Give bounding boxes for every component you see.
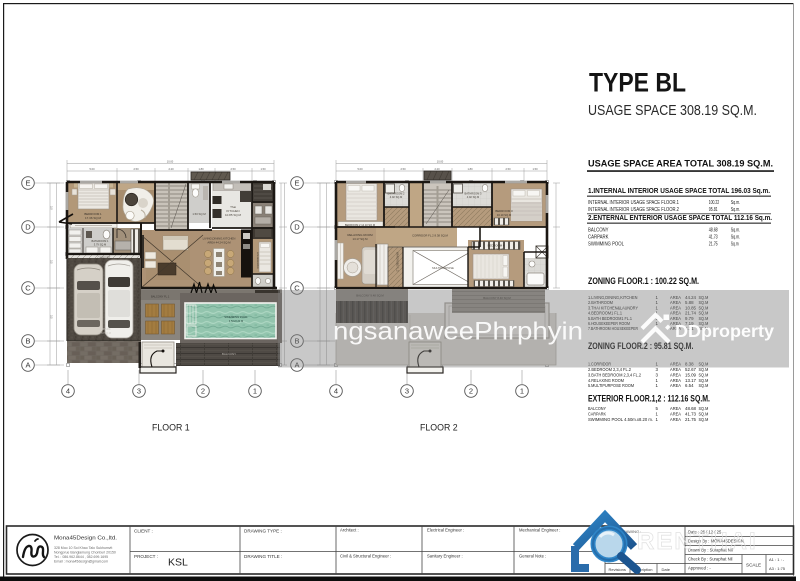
svg-text:AREA: AREA [670,417,681,422]
svg-text:1: 1 [253,387,257,396]
svg-text:SWIMMING POOL: SWIMMING POOL [588,241,624,247]
svg-text:2.ENTERNAL ENTERIOR USAGE SPAC: 2.ENTERNAL ENTERIOR USAGE SPACE TOTAL 11… [588,213,772,222]
svg-text:3.BATH BEDROOM 2,3,4 FL.2: 3.BATH BEDROOM 2,3,4 FL.2 [588,372,641,377]
svg-text:B: B [25,337,30,346]
svg-text:328 Moo 10 Soi Khao Talo Sukhu: 328 Moo 10 Soi Khao Talo Sukhumvit [54,546,112,550]
svg-text:USAGE SPACE AREA TOTAL 308.19: USAGE SPACE AREA TOTAL 308.19 SQ.M. [588,159,773,170]
svg-text:AREA: AREA [670,383,681,388]
svg-text:CARPARK: CARPARK [97,327,110,331]
svg-text:Email : mona45design@gmail.com: Email : mona45design@gmail.com [54,560,108,564]
svg-text:2.50: 2.50 [400,167,406,171]
svg-text:5: 5 [656,406,659,411]
svg-text:1: 1 [656,378,659,383]
svg-text:6.54: 6.54 [685,383,694,388]
svg-text:HOUSEKEEPER: HOUSEKEEPER [256,252,258,269]
svg-text:1.50: 1.50 [532,167,538,171]
svg-text:10.00: 10.00 [437,159,444,163]
svg-text:SQ.M: SQ.M [699,372,709,377]
svg-text:1: 1 [656,411,659,416]
svg-text:3: 3 [656,372,659,377]
svg-text:DRAWING TYPE :: DRAWING TYPE : [244,529,282,534]
svg-text:Mechanical Engineer :: Mechanical Engineer : [519,528,560,533]
svg-text:Architect :: Architect : [340,528,359,533]
svg-text:Approved : -: Approved : - [688,566,711,571]
svg-text:21.75: 21.75 [685,417,697,422]
svg-text:D: D [294,223,300,232]
svg-text:4: 4 [334,387,338,396]
svg-text:48.68: 48.68 [685,406,697,411]
svg-text:11.67 SQ.M: 11.67 SQ.M [489,247,503,251]
svg-text:DRAWING TITLE :: DRAWING TITLE : [244,554,282,559]
svg-text:Sanitary Engineer :: Sanitary Engineer : [427,554,463,559]
svg-text:TYPE BL: TYPE BL [589,68,686,98]
svg-text:SQ.M: SQ.M [699,383,709,388]
svg-text:Check By : Suraphat Nil: Check By : Suraphat Nil [688,557,733,562]
svg-text:1: 1 [520,387,524,396]
svg-text:A: A [25,361,30,370]
svg-text:4.50x8.20 M: 4.50x8.20 M [229,319,243,323]
svg-text:41.73 SQ.M: 41.73 SQ.M [97,331,111,335]
svg-text:SQ.M: SQ.M [699,417,709,422]
svg-text:1.INTERNAL INTERIOR USAGE SPAC: 1.INTERNAL INTERIOR USAGE SPACE TOTAL 19… [588,186,770,195]
svg-text:2: 2 [201,387,205,396]
svg-text:2: 2 [469,387,473,396]
svg-text:BEDROOM 3: BEDROOM 3 [495,209,513,213]
svg-text:1: 1 [656,417,659,422]
svg-text:USAGE SPACE 308.19 SQ.M.: USAGE SPACE 308.19 SQ.M. [588,102,757,119]
svg-text:4: 4 [66,387,70,396]
svg-text:SQ.M: SQ.M [699,378,709,383]
svg-text:5.MULTIPURPOSE ROOM: 5.MULTIPURPOSE ROOM [588,383,634,388]
svg-text:2.20: 2.20 [168,167,174,171]
svg-text:BALCONY: BALCONY [588,406,606,411]
svg-text:E: E [294,179,299,188]
svg-text:2.50: 2.50 [133,167,139,171]
svg-text:BALCONY: BALCONY [222,352,236,356]
svg-text:4.RELAXING ROOM: 4.RELAXING ROOM [588,378,624,383]
svg-text:KSL: KSL [168,557,188,569]
svg-text:BEDROOM 4: BEDROOM 4 [488,244,505,248]
svg-text:WARDROBE FL.2: WARDROBE FL.2 [396,252,399,272]
svg-text:CARPARK: CARPARK [588,234,609,240]
svg-text:4.92 SQ.M: 4.92 SQ.M [390,195,402,199]
svg-text:SQ.M: SQ.M [699,367,709,372]
svg-text:CLIENT :: CLIENT : [134,529,153,534]
svg-text:2.50: 2.50 [230,167,236,171]
svg-text:4.92 SQ.M: 4.92 SQ.M [467,195,479,199]
svg-text:3.5: 3.5 [50,260,54,264]
svg-text:BALCONY: BALCONY [588,227,609,233]
svg-text:3.79 SQ.M: 3.79 SQ.M [94,242,106,246]
svg-text:SCALE: SCALE [746,563,761,568]
svg-text:Sq.m.: Sq.m. [731,200,741,206]
svg-text:3: 3 [656,367,659,372]
svg-text:2.BEDROOM 2,3,4 FL.2: 2.BEDROOM 2,3,4 FL.2 [588,367,632,372]
svg-text:Sq.m.: Sq.m. [731,234,741,240]
svg-text:SQ.M: SQ.M [699,406,709,411]
svg-text:1.50: 1.50 [260,167,266,171]
svg-text:General Note :: General Note : [519,554,546,559]
svg-text:17.36 SQ.M: 17.36 SQ.M [85,216,102,220]
svg-text:1.80: 1.80 [467,167,473,171]
svg-text:SWIMMING POOL 4.50m.x8.20 m.: SWIMMING POOL 4.50m.x8.20 m. [588,417,653,422]
svg-text:1.80: 1.80 [198,167,204,171]
svg-text:AREA: AREA [670,411,681,416]
svg-text:AREA: AREA [670,367,681,372]
svg-text:Tel. : 086.962.8644 , 082.699: Tel. : 086.962.8644 , 082.699.1695 [54,555,108,559]
svg-text:10.00: 10.00 [167,159,174,163]
svg-text:21.75: 21.75 [709,241,718,247]
svg-text:SQ.M: SQ.M [699,411,709,416]
svg-text:AREA 44.24 SQ.M: AREA 44.24 SQ.M [207,241,231,245]
svg-text:FLOOR 2: FLOOR 2 [420,423,458,433]
svg-text:48.68: 48.68 [709,227,718,233]
svg-text:Nongprue Banglamung Chonburi 2: Nongprue Banglamung Chonburi 20150 [54,551,116,555]
svg-text:3: 3 [137,387,141,396]
svg-text:15.09: 15.09 [685,372,697,377]
svg-text:AREA: AREA [670,378,681,383]
svg-text:1: 1 [656,383,659,388]
svg-text:16.10 SQ.M: 16.10 SQ.M [497,213,512,217]
svg-text:13.17: 13.17 [685,378,697,383]
svg-text:3.5: 3.5 [50,315,54,319]
svg-text:41.73: 41.73 [685,411,697,416]
svg-text:2.50: 2.50 [505,167,511,171]
svg-text:CARPARK: CARPARK [588,411,606,416]
svg-text:A1 : 1 : -: A1 : 1 : - [769,557,785,562]
svg-text:CORRIDOR FL.2 8.38 SQ.M: CORRIDOR FL.2 8.38 SQ.M [412,234,448,238]
svg-text:D: D [25,223,31,232]
svg-text:C: C [25,284,31,293]
svg-text:5.00: 5.00 [89,167,95,171]
svg-text:FLOOR 1: FLOOR 1 [152,423,190,433]
svg-text:41.73: 41.73 [709,234,718,240]
svg-text:1.50 SQ.M: 1.50 SQ.M [192,212,206,216]
svg-text:52.67: 52.67 [685,367,697,372]
svg-text:Civil & Structural Engineer :: Civil & Structural Engineer : [340,554,391,559]
svg-text:100.22: 100.22 [709,200,720,206]
svg-text:PROJECT :: PROJECT : [134,554,158,559]
svg-text:13.17 SQ.M: 13.17 SQ.M [353,237,369,241]
svg-text:AREA: AREA [670,372,681,377]
svg-text:A3 : 1:75: A3 : 1:75 [769,566,786,571]
svg-text:Sq.m: Sq.m [731,241,739,247]
svg-text:Mona45Design Co.,ltd.: Mona45Design Co.,ltd. [54,536,117,542]
svg-text:Electrical Engineer :: Electrical Engineer : [427,528,464,533]
svg-text:MULTIPURPOSE: MULTIPURPOSE [432,266,454,270]
svg-text:5.00: 5.00 [357,167,363,171]
svg-text:SWIMMING POOL: SWIMMING POOL [224,315,248,319]
svg-text:EXTERIOR FLOOR.1,2 : 112.16 SQ: EXTERIOR FLOOR.1,2 : 112.16 SQ.M. [588,394,710,405]
svg-text:3.0: 3.0 [50,206,54,210]
svg-text:DDproperty: DDproperty [675,321,774,341]
svg-text:INTERNAL INTERIOR USAGE SPACE: INTERNAL INTERIOR USAGE SPACE FLOOR.1 [588,200,679,206]
svg-text:2.20: 2.20 [434,167,440,171]
svg-text:AREA: AREA [670,406,681,411]
svg-text:Revisions: Revisions [609,567,626,572]
svg-text:3: 3 [405,387,409,396]
svg-text:ngsanaweePhrphyin: ngsanaweePhrphyin [333,318,583,346]
svg-text:E: E [25,179,30,188]
svg-text:BALCONY FL.1: BALCONY FL.1 [151,295,170,299]
svg-text:RENTHAI: RENTHAI [637,528,758,555]
svg-text:Date: Date [662,567,671,572]
svg-text:10.85 SQ.M: 10.85 SQ.M [225,213,242,217]
svg-text:ZONING FLOOR.1 : 100.22 SQ.M.: ZONING FLOOR.1 : 100.22 SQ.M. [588,276,699,287]
svg-text:Sq.m.: Sq.m. [731,227,741,233]
